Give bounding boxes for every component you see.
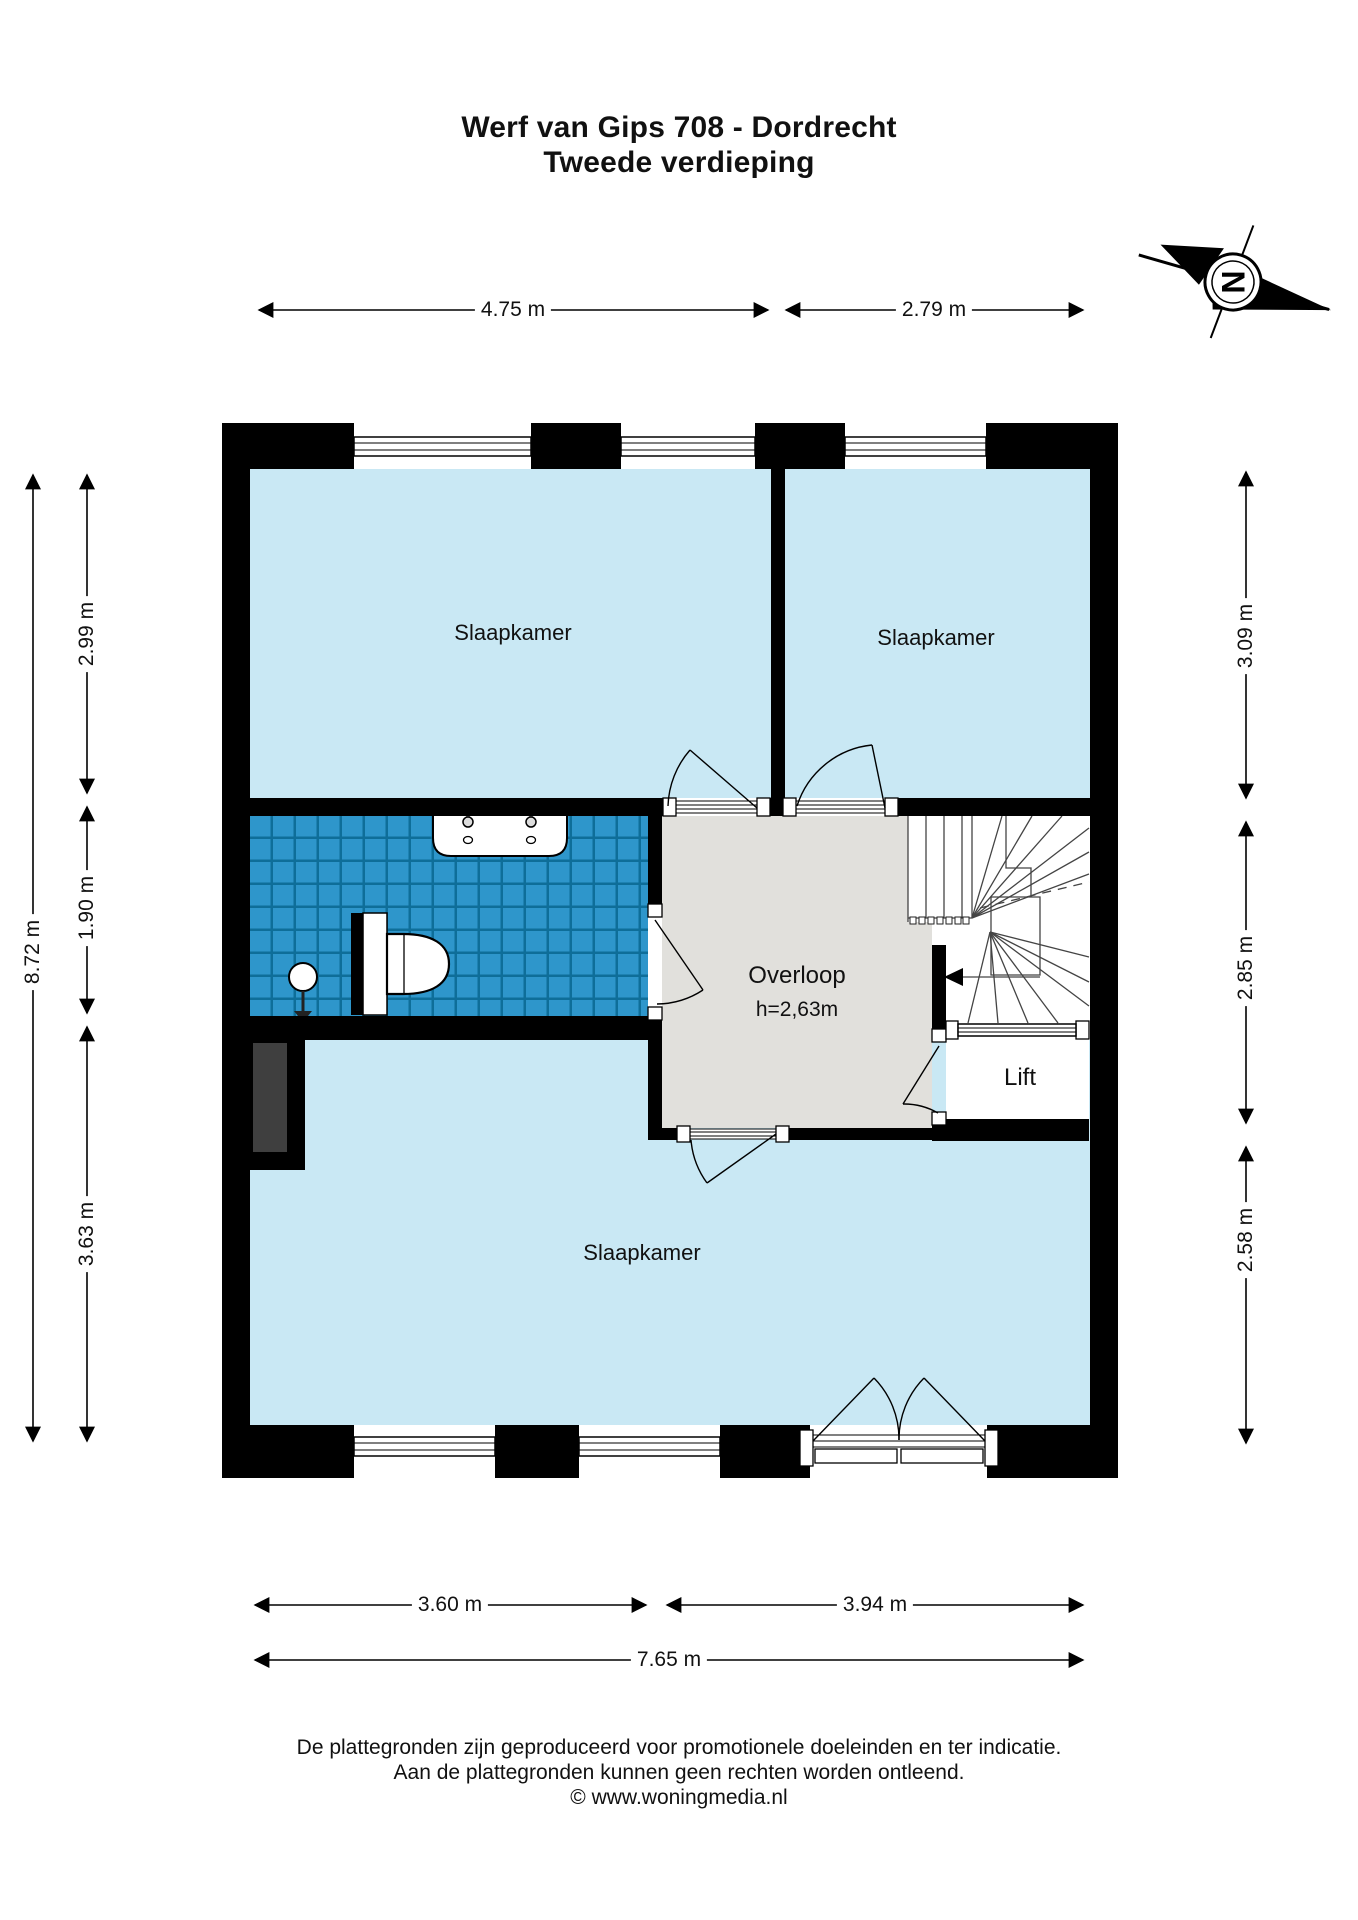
dim-right-2: 2.85 m bbox=[1234, 930, 1258, 1006]
dim-left-3: 3.63 m bbox=[75, 1196, 99, 1272]
stair-nosing-marks bbox=[910, 917, 969, 924]
dim-top-2: 2.79 m bbox=[896, 298, 972, 322]
page-title: Werf van Gips 708 - Dordrecht bbox=[461, 111, 896, 145]
dim-right-3: 2.58 m bbox=[1234, 1202, 1258, 1278]
room-label-bedroom-top-right: Slaapkamer bbox=[877, 625, 994, 651]
lift-door bbox=[946, 1021, 1089, 1039]
footer-disclaimer-1: De plattegronden zijn geproduceerd voor … bbox=[297, 1736, 1062, 1760]
window-top-2 bbox=[621, 437, 755, 456]
wall-left bbox=[222, 423, 250, 1478]
room-label-bedroom-bottom: Slaapkamer bbox=[583, 1240, 700, 1266]
room-label-lift: Lift bbox=[1004, 1064, 1036, 1092]
room-label-landing-height: h=2,63m bbox=[756, 998, 838, 1022]
room-label-landing: Overloop bbox=[748, 962, 845, 990]
wall-right bbox=[1090, 423, 1118, 1478]
dim-left-total: 8.72 m bbox=[21, 914, 45, 990]
dim-left-1: 2.99 m bbox=[75, 596, 99, 672]
floorplan-drawing: N bbox=[0, 0, 1358, 1920]
compass-north-label: N bbox=[1215, 270, 1251, 293]
room-label-bedroom-top-left: Slaapkamer bbox=[454, 620, 571, 646]
page-subtitle: Tweede verdieping bbox=[543, 146, 814, 180]
duct-shaft bbox=[250, 1040, 305, 1170]
dim-bottom-total: 7.65 m bbox=[631, 1648, 707, 1672]
dim-right-1: 3.09 m bbox=[1234, 598, 1258, 674]
dim-top-1: 4.75 m bbox=[475, 298, 551, 322]
footer-copyright: © www.woningmedia.nl bbox=[570, 1786, 787, 1810]
dim-bottom-2: 3.94 m bbox=[837, 1593, 913, 1617]
compass-north-icon: N bbox=[1122, 197, 1347, 367]
window-bottom-1 bbox=[354, 1437, 495, 1456]
dim-left-2: 1.90 m bbox=[75, 870, 99, 946]
footer-disclaimer-2: Aan de plattegronden kunnen geen rechten… bbox=[394, 1761, 965, 1785]
dim-bottom-1: 3.60 m bbox=[412, 1593, 488, 1617]
stair-tread-strip bbox=[908, 816, 932, 922]
floorplan-page: N Werf van Gips 708 - Dordrecht Tweede v… bbox=[0, 0, 1358, 1920]
window-top-1 bbox=[354, 437, 531, 456]
window-top-3 bbox=[845, 437, 986, 456]
window-bottom-2 bbox=[579, 1437, 720, 1456]
